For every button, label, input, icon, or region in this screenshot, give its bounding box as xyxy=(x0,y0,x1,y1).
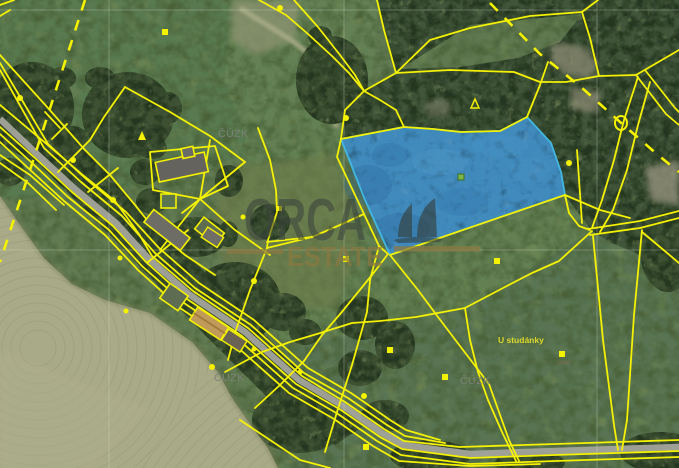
svg-text:ESTATE: ESTATE xyxy=(287,241,383,272)
svg-text:ČÚZK: ČÚZK xyxy=(460,374,491,387)
svg-text:ČÚZK: ČÚZK xyxy=(218,127,249,140)
svg-text:ČÚZK: ČÚZK xyxy=(214,371,245,384)
svg-text:U studánky: U studánky xyxy=(498,335,544,345)
svg-text:1405/3: 1405/3 xyxy=(557,360,571,365)
